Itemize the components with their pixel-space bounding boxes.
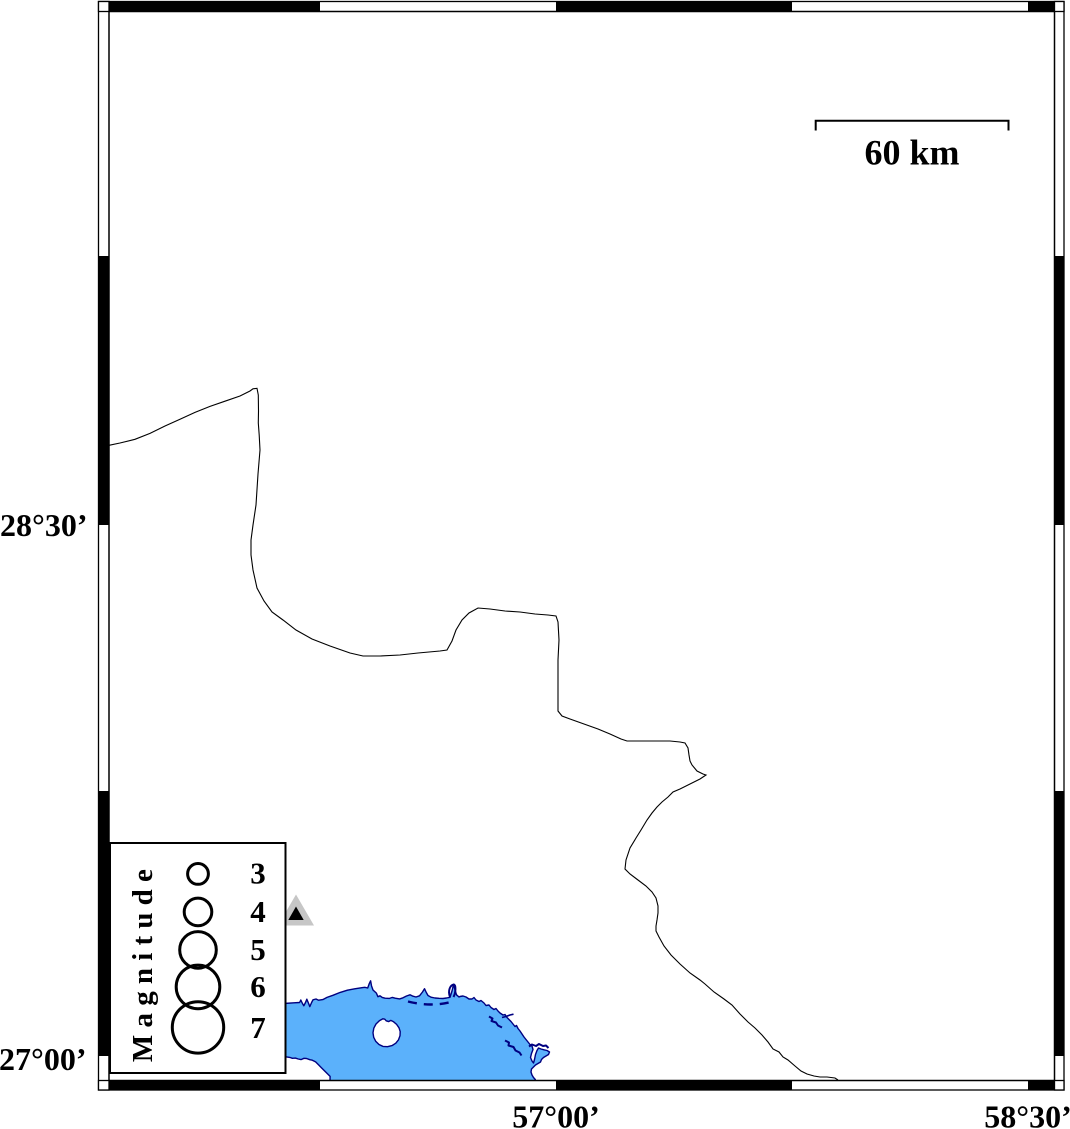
svg-text:57°00’: 57°00’ — [512, 1099, 599, 1129]
svg-text:7: 7 — [250, 1010, 266, 1045]
svg-text:6: 6 — [250, 969, 266, 1004]
svg-text:4: 4 — [250, 894, 266, 929]
svg-text:58°30’: 58°30’ — [984, 1099, 1070, 1129]
svg-text:60 km: 60 km — [864, 133, 959, 173]
svg-text:Magnitude: Magnitude — [127, 862, 159, 1062]
svg-text:27°00’: 27°00’ — [0, 1041, 87, 1077]
svg-text:28°30’: 28°30’ — [0, 507, 87, 543]
svg-text:3: 3 — [250, 855, 266, 890]
svg-text:5: 5 — [250, 932, 266, 967]
